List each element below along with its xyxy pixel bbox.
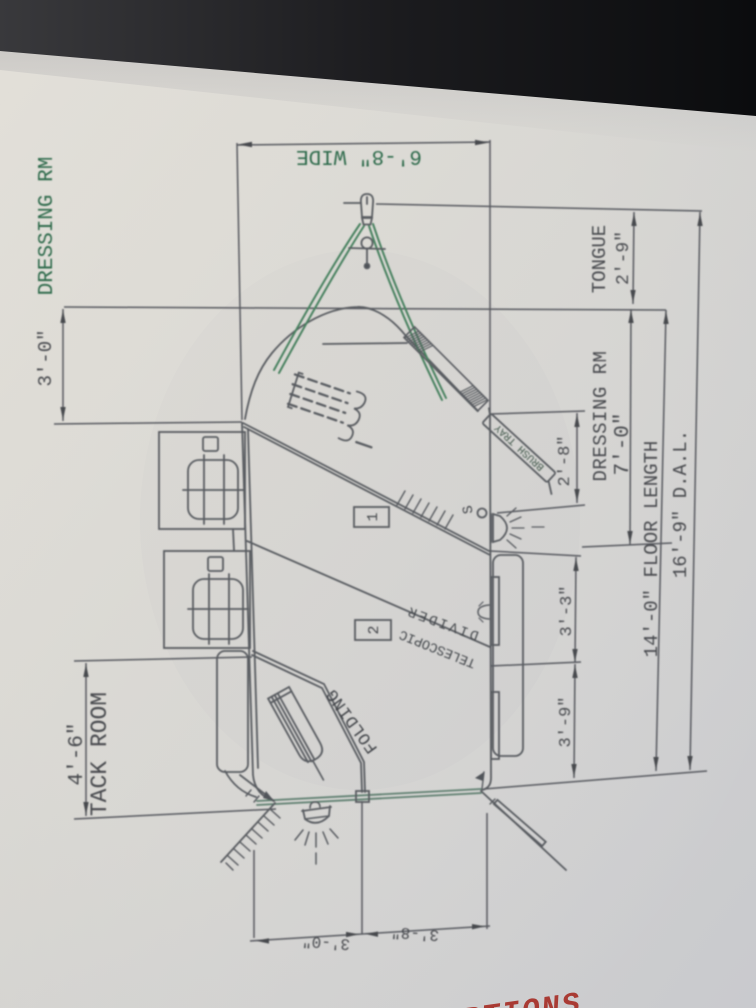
svg-text:3'-8": 3'-8"	[391, 922, 440, 943]
svg-text:2'-9": 2'-9"	[614, 231, 634, 285]
svg-text:3'-3": 3'-3"	[558, 585, 577, 636]
svg-text:6'-8" WIDE: 6'-8" WIDE	[296, 144, 422, 167]
svg-text:7'-0": 7'-0"	[612, 412, 635, 475]
svg-text:TACK ROOM: TACK ROOM	[87, 692, 113, 816]
svg-text:3'-9": 3'-9"	[557, 696, 576, 747]
svg-text:2'-8": 2'-8"	[556, 435, 575, 486]
svg-text:DRESSING RM: DRESSING RM	[590, 351, 612, 482]
svg-text:14'-0" FLOOR LENGTH: 14'-0" FLOOR LENGTH	[641, 441, 663, 658]
svg-text:2: 2	[366, 625, 383, 634]
svg-text:DRESSING RM: DRESSING RM	[36, 157, 59, 296]
svg-text:16'-9" D.A.L.: 16'-9" D.A.L.	[670, 430, 692, 578]
svg-text:4'-6": 4'-6"	[66, 722, 89, 785]
svg-text:TONGUE: TONGUE	[589, 225, 611, 293]
svg-text:3'-0": 3'-0"	[35, 329, 57, 386]
svg-text:1: 1	[365, 512, 382, 521]
svg-text:3'-0": 3'-0"	[302, 931, 351, 952]
